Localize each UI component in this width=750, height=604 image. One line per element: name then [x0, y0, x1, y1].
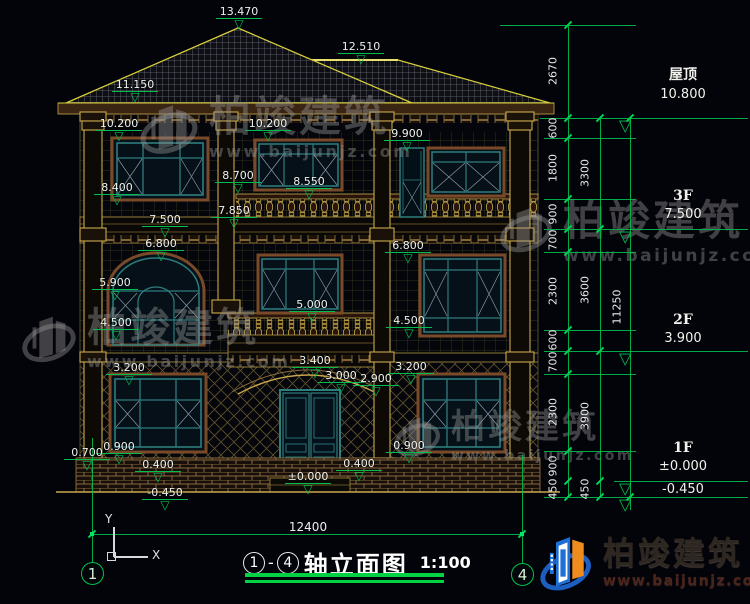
- level-marker-triangle: ▽: [619, 352, 631, 365]
- dimension-text: 700: [547, 352, 560, 373]
- title-axis-bubble-start: 1: [243, 552, 265, 574]
- extension-line: [544, 497, 748, 498]
- dimension-text: 700: [547, 230, 560, 251]
- logo-url: www.baijunjz.com: [603, 573, 750, 589]
- dimension-text: 450: [547, 479, 560, 500]
- brand-logo-icon: [538, 530, 596, 596]
- title-separator: -: [268, 553, 274, 572]
- overall-dim-line: [92, 534, 522, 535]
- elevation-marker: 6.800▽: [136, 238, 186, 261]
- drawing-scale: 1:100: [420, 553, 471, 572]
- axis-node: [520, 532, 524, 536]
- floor-level-label: 3F7.500: [628, 188, 738, 222]
- ucs-x-axis: [114, 556, 148, 558]
- roof: [58, 28, 554, 123]
- elevation-marker: 12.510▽: [336, 41, 386, 64]
- floor-level-label: 2F3.900: [628, 312, 738, 346]
- level-marker-triangle: ▽: [619, 230, 631, 243]
- level-marker-triangle: ▽: [619, 119, 631, 132]
- extension-line: [544, 252, 636, 253]
- elevation-marker: 7.500▽: [140, 214, 190, 237]
- elevation-marker: 5.900▽: [90, 277, 140, 300]
- cad-drawing-canvas[interactable]: 柏竣建筑 www.baijunjz.com 柏竣建筑 www.baijunjz.…: [0, 0, 750, 604]
- eave-dentils: [84, 115, 538, 123]
- dimension-text: 900: [547, 456, 560, 477]
- elevation-marker: 13.470▽: [214, 6, 264, 29]
- door-3f-balcony: [400, 148, 424, 217]
- elevation-marker: ±0.000▽: [283, 471, 333, 494]
- elevation-marker: 10.200▽: [94, 118, 144, 141]
- axis-bubble-4: 4: [511, 563, 534, 586]
- elevation-marker: 0.900▽: [384, 440, 434, 463]
- title-underline: [245, 580, 444, 583]
- dim-chain-line-2: [600, 118, 601, 497]
- elevation-marker: 11.150▽: [110, 79, 160, 102]
- axis-node: [90, 532, 94, 536]
- elevation-marker: 4.500▽: [384, 315, 434, 338]
- ucs-y-label: Y: [105, 512, 112, 526]
- title-underline: [245, 573, 444, 577]
- elevation-marker: 3.200▽: [104, 362, 154, 385]
- floor-level-label: 1F±0.000-0.450: [628, 440, 738, 497]
- elevation-marker: 0.700▽: [62, 447, 112, 470]
- elevation-marker: 7.850▽: [209, 205, 259, 228]
- elevation-marker: 5.000▽: [287, 299, 337, 322]
- elevation-marker: 10.200▽: [243, 118, 293, 141]
- floor-level-label: 屋顶10.800: [628, 64, 738, 102]
- dimension-text: 450: [579, 479, 592, 500]
- elevation-marker: 4.500▽: [91, 317, 141, 340]
- extension-line: [540, 118, 748, 119]
- dimension-text: 2300: [547, 398, 560, 426]
- elevation-marker: 0.400▽: [334, 458, 384, 481]
- dimension-text: 3600: [579, 276, 592, 304]
- ucs-origin-box: [107, 552, 116, 561]
- elevation-marker: -0.450▽: [140, 487, 190, 510]
- dimension-text: 11250: [611, 290, 624, 325]
- dimension-text: 900: [547, 204, 560, 225]
- extension-line: [544, 374, 636, 375]
- overall-dimension: 12400: [278, 520, 338, 534]
- elevation-marker: 0.400▽: [133, 459, 183, 482]
- dimension-text: 3900: [579, 402, 592, 430]
- elevation-marker: 8.700▽: [213, 170, 263, 193]
- axis-bubble-1: 1: [81, 562, 104, 585]
- eave-fascia: [58, 103, 554, 114]
- dimension-text: 2300: [547, 277, 560, 305]
- extension-line: [500, 25, 636, 26]
- ucs-x-label: X: [152, 548, 160, 562]
- extension-line: [544, 451, 636, 452]
- dimension-text: 2670: [547, 57, 560, 85]
- extension-line: [544, 199, 636, 200]
- extension-line: [544, 229, 748, 230]
- dimension-text: 600: [547, 118, 560, 139]
- elevation-marker: 2.900▽: [351, 373, 401, 396]
- dimension-text: 3300: [579, 159, 592, 187]
- elevation-marker: 9.900▽: [382, 128, 432, 151]
- elevation-marker: 6.800▽: [383, 240, 433, 263]
- elevation-marker: 8.550▽: [284, 176, 334, 199]
- brand-logo: 柏竣建筑 www.baijunjz.com: [538, 530, 750, 596]
- dimension-text: 1800: [547, 154, 560, 182]
- dim-chain-line-1: [568, 25, 569, 497]
- dimension-text: 600: [547, 330, 560, 351]
- axis-line-4: [522, 455, 523, 564]
- level-marker-triangle: ▽: [619, 498, 631, 511]
- title-axis-bubble-end: 4: [277, 552, 299, 574]
- elevation-marker: 8.400▽: [92, 182, 142, 205]
- logo-brand: 柏竣建筑: [603, 537, 750, 569]
- extension-line: [544, 351, 748, 352]
- window-3f-right: [428, 148, 504, 196]
